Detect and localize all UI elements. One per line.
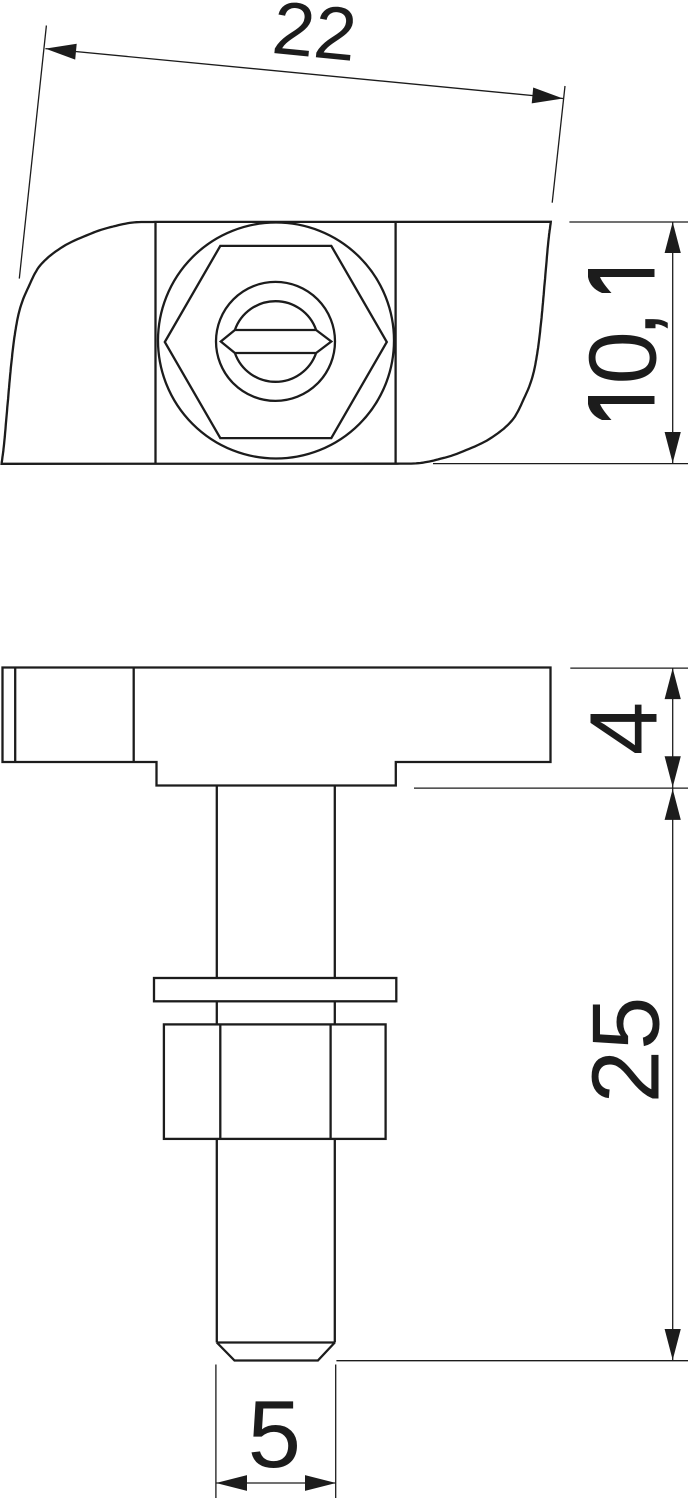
svg-text:4: 4: [571, 702, 678, 755]
svg-text:22: 22: [269, 0, 360, 77]
svg-text:25: 25: [573, 997, 680, 1104]
svg-text:5: 5: [248, 1381, 301, 1488]
svg-text:10,1: 10,1: [570, 267, 677, 431]
